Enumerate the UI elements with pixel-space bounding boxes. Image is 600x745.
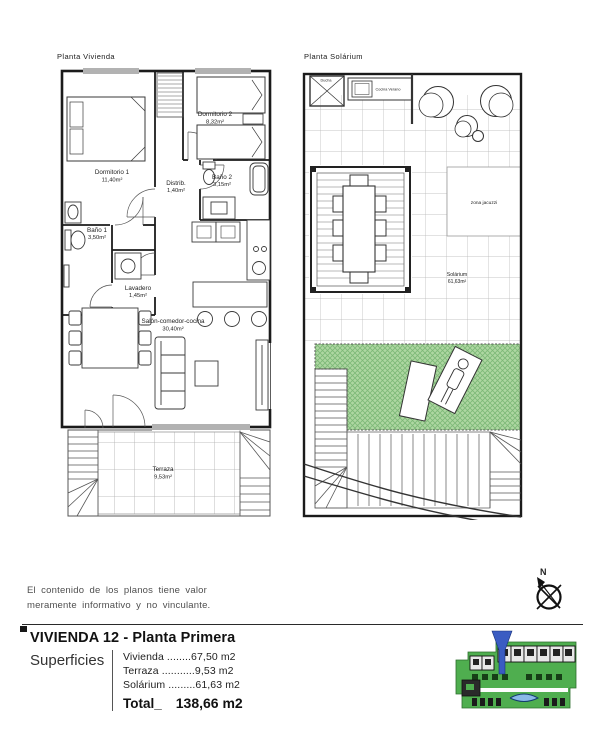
disclaimer-text: El contenido de los planos tiene valor m… xyxy=(27,584,327,613)
room-name: Distrib. xyxy=(166,180,186,187)
terrace-zone xyxy=(68,430,270,516)
plan-title-solarium: Planta Solárium xyxy=(304,52,363,61)
title-block: VIVIENDA 12 - Planta Primera Superficies… xyxy=(22,630,360,711)
room-area: 9,53m² xyxy=(154,475,172,481)
plan-title-vivienda: Planta Vivienda xyxy=(57,52,115,61)
room-area: 3,15m² xyxy=(213,182,231,188)
stairs-right xyxy=(240,430,270,516)
disclaimer-line-2: meramente informativo y no vinculante. xyxy=(27,599,327,614)
curved-beam xyxy=(304,464,521,517)
room-area: 1,40m² xyxy=(167,188,185,194)
room-area: 30,40m² xyxy=(162,327,183,333)
area-row-solarium: Solárium .........61,63 m2 xyxy=(123,678,243,692)
room-name: Salón-comedor-cocina xyxy=(142,318,205,325)
stairs-lower-right xyxy=(490,432,521,508)
page-title: VIVIENDA 12 - Planta Primera xyxy=(30,630,360,646)
tv-bench xyxy=(256,340,268,410)
coffee-table xyxy=(195,361,218,386)
compass-north-label: N xyxy=(540,567,547,577)
stairs-left xyxy=(68,430,98,516)
areas-list: Vivienda ........67,50 m2 Terraza ......… xyxy=(112,650,243,711)
room-area: 8,32m² xyxy=(206,120,224,126)
compass-icon: N xyxy=(527,563,571,619)
bed-dormitorio-1 xyxy=(67,97,145,161)
laundry-fixtures xyxy=(115,253,141,279)
shower-label: Ducha xyxy=(321,79,333,83)
room-area: 11,40m² xyxy=(102,178,123,184)
room-name: Baño 2 xyxy=(212,174,232,181)
room-area: 3,50m² xyxy=(88,235,106,241)
room-name: Terraza xyxy=(153,466,174,473)
area-row-vivienda: Vivienda ........67,50 m2 xyxy=(123,650,243,664)
total-row: Total_138,66 m2 xyxy=(123,695,243,711)
jacuzzi-label: zona jacuzzi xyxy=(471,200,497,206)
solarium-name: Solárium xyxy=(447,272,467,278)
divider-rule xyxy=(22,624,583,625)
floorplan-solarium: Ducha Cocina Verano zona jacuzzi Soláriu… xyxy=(300,68,526,520)
room-name: Dormitorio 2 xyxy=(198,111,233,118)
slatted-roof-zone xyxy=(304,432,521,520)
curved-beam xyxy=(304,476,521,520)
room-area: 1,45m² xyxy=(129,293,147,299)
floorplan-vivienda: Dormitorio 1 11,40m² Dormitorio 2 8,32m²… xyxy=(55,65,273,520)
solarium-area: 61,63m² xyxy=(448,279,467,285)
total-label: Total_ xyxy=(123,696,162,711)
superficies-label: Superficies xyxy=(30,652,110,669)
room-name: Baño 1 xyxy=(87,227,107,234)
area-row-terraza: Terraza ...........9,53 m2 xyxy=(123,664,243,678)
disclaimer-line-1: El contenido de los planos tiene valor xyxy=(27,584,327,599)
room-name: Lavadero xyxy=(125,285,152,292)
total-value: 138,66 m2 xyxy=(176,695,243,711)
sofa xyxy=(155,337,185,409)
blueprint-page: Planta Vivienda xyxy=(0,0,600,745)
site-plan-thumbnail xyxy=(448,630,588,722)
room-name: Dormitorio 1 xyxy=(95,169,130,176)
dining-set xyxy=(69,308,151,368)
site-clubhouse xyxy=(462,680,480,696)
summer-kitchen-label: Cocina Verano xyxy=(376,88,401,92)
